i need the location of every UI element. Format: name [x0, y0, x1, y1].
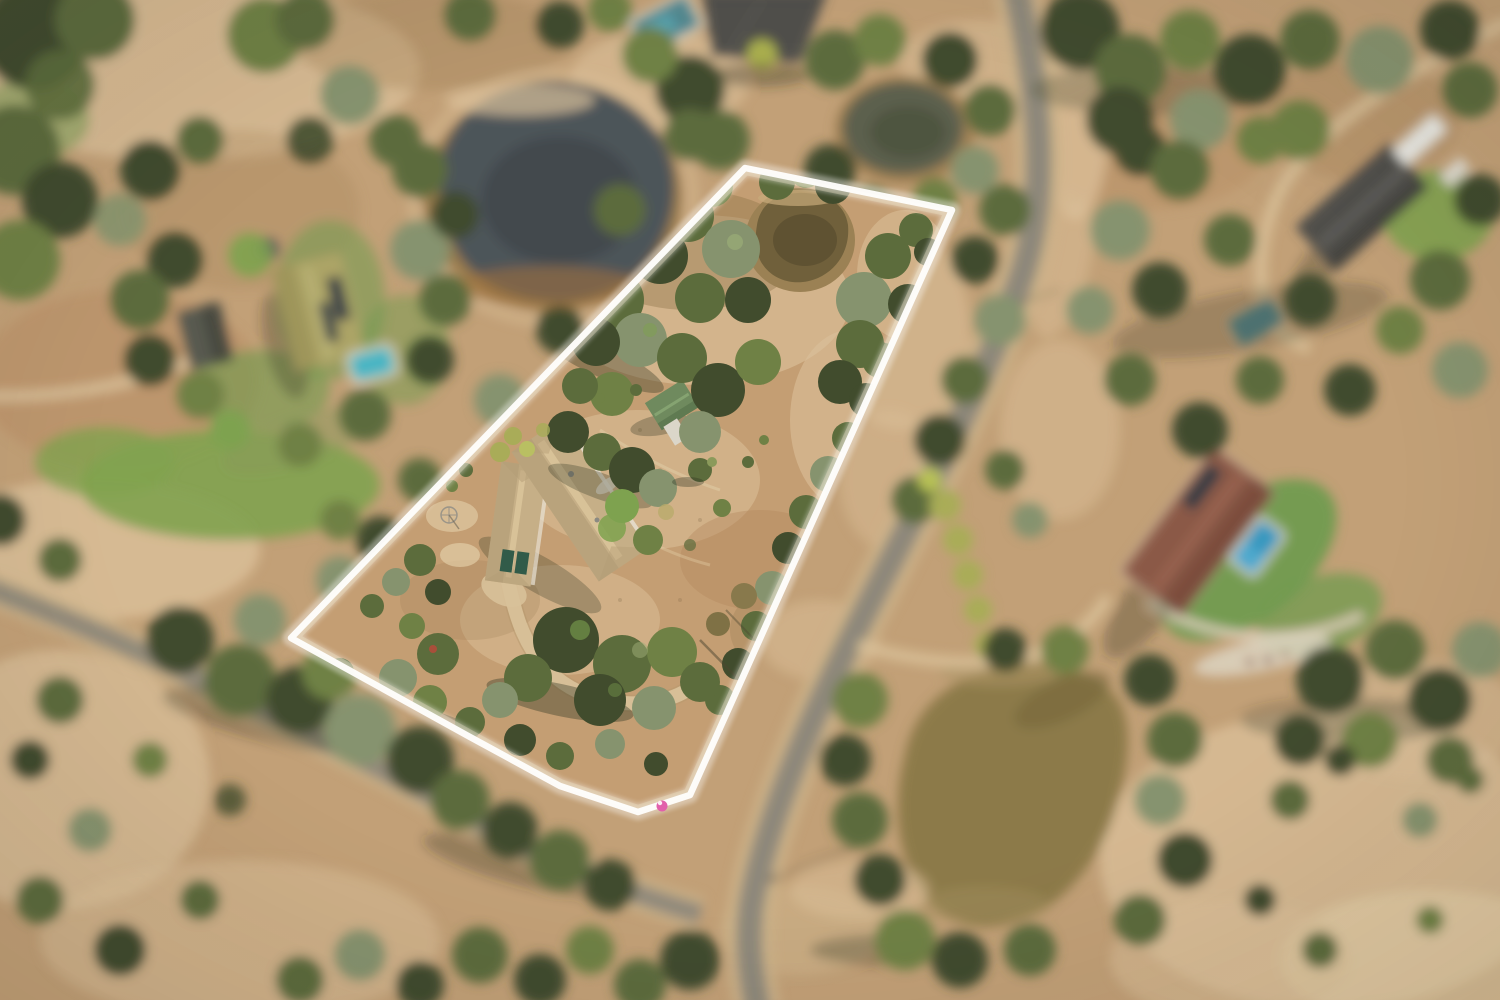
aerial-photo [0, 0, 1500, 1000]
vignette-overlay [0, 0, 1500, 1000]
aerial-photo-canvas [0, 0, 1500, 1000]
